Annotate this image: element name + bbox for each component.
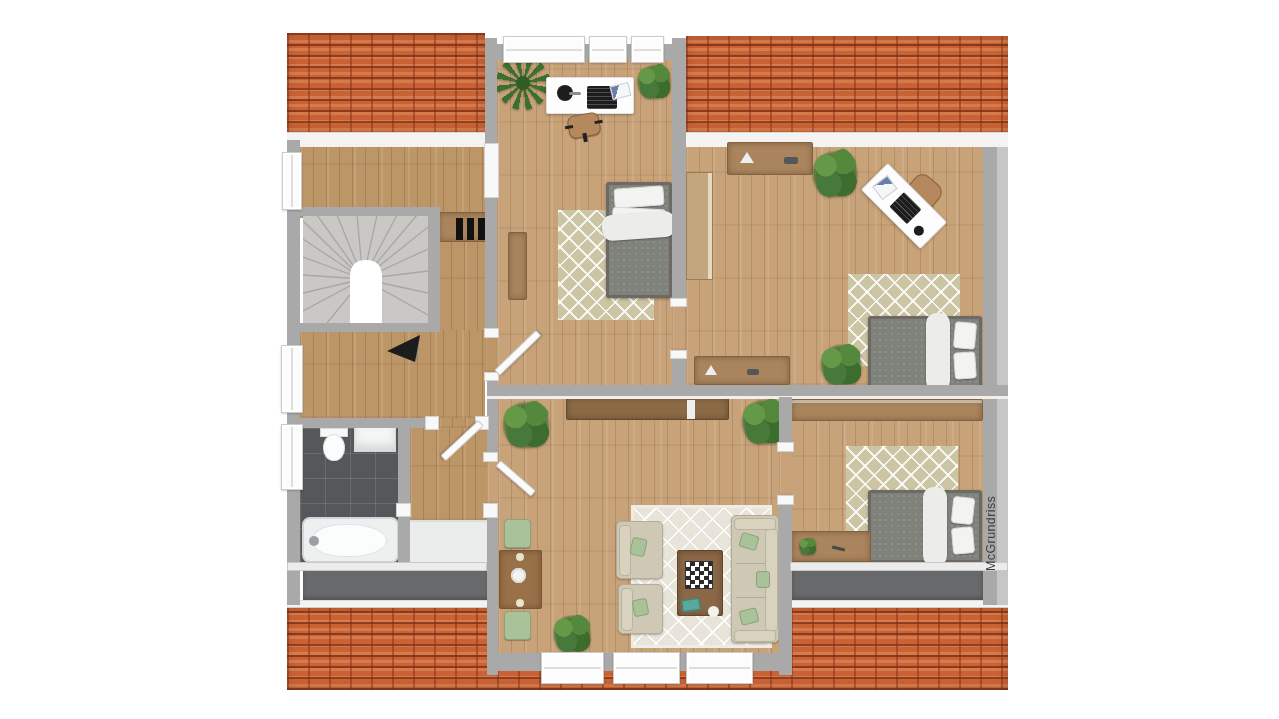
window (281, 424, 303, 490)
table-deco-icon (516, 599, 524, 607)
armchair-back (621, 588, 633, 631)
radiator-shelf (438, 212, 487, 242)
sideboard-north (727, 142, 813, 175)
floor-plan-canvas: McGrundriss (0, 0, 1279, 719)
staircase (303, 215, 428, 323)
wall-living-west (487, 518, 498, 675)
pillow (953, 351, 977, 379)
green-cushion (756, 571, 770, 588)
jamb (396, 503, 411, 517)
office-magazine-icon (610, 82, 632, 100)
wall-bath-top (287, 418, 427, 428)
office-plant (636, 62, 672, 102)
door-landing-office (484, 143, 499, 198)
dining-table (499, 550, 542, 609)
window (686, 652, 753, 684)
jamb (483, 452, 498, 462)
living-plant-nw (500, 399, 552, 451)
jamb (425, 416, 439, 430)
east-door-threshold (672, 307, 686, 350)
sideboard-south (694, 356, 790, 385)
wall-southeast-bottom (790, 562, 1008, 571)
jamb (484, 328, 499, 338)
wall-stair-east (428, 215, 440, 332)
potted-plant-icon (798, 537, 817, 556)
chessboard-icon (685, 561, 713, 589)
wall-living-east-b (779, 505, 792, 675)
wall-stair-north (300, 207, 440, 216)
coffee-table (677, 550, 723, 616)
window-sash (506, 49, 582, 51)
deco-triangle-icon (705, 365, 717, 375)
hall-nook-floor (410, 428, 487, 520)
dining-chair-north (504, 519, 531, 548)
desk-lamp-arm (569, 92, 581, 95)
office-wall-board (508, 232, 527, 300)
window (631, 36, 664, 63)
pillow (951, 526, 975, 555)
sofa-seat-divider (736, 563, 766, 564)
teal-book-icon (681, 598, 700, 612)
living-sideboard (566, 397, 729, 420)
wall-office-west-b (485, 198, 497, 328)
roof-top-right (686, 36, 1008, 134)
wall-bath-east-a (398, 428, 410, 503)
jamb (670, 350, 687, 359)
wall-living-east-a (779, 397, 792, 442)
southeast-door-threshold (779, 452, 792, 495)
stair-void-arch (350, 260, 382, 323)
window (503, 36, 585, 63)
green-cushion (632, 598, 650, 617)
duvet-fold (923, 487, 947, 566)
window-sash (634, 49, 661, 51)
deco-item (784, 157, 798, 164)
sofa-seat-divider (736, 597, 766, 598)
balcony-east (792, 568, 983, 600)
wall-bath-bottom (287, 562, 487, 571)
east-floor-plant (818, 342, 864, 388)
stair-direction-arrow (386, 334, 422, 364)
sofa (731, 515, 779, 643)
east-magazine-icon (872, 175, 897, 200)
watermark: McGrundriss (984, 486, 1002, 580)
pen-icon (832, 545, 845, 551)
green-cushion (738, 607, 759, 626)
armchair-south (618, 584, 663, 634)
living-plant-sw (551, 613, 593, 655)
window-sash (592, 49, 624, 51)
sideboard-gap (687, 400, 695, 419)
toilet-bowl (323, 434, 345, 461)
bath-shelf (354, 427, 396, 452)
southeast-bed (868, 490, 982, 563)
deco-triangle-icon (740, 152, 754, 163)
radiator-icon (467, 218, 474, 240)
east-bed (868, 316, 982, 388)
green-cushion (738, 532, 759, 551)
balcony-west (303, 568, 488, 600)
window-sash (291, 155, 293, 207)
chair-leg (582, 133, 588, 143)
green-cushion (629, 537, 647, 558)
window-sash (291, 348, 293, 410)
radiator-icon (478, 218, 485, 240)
faucet-icon (309, 536, 319, 546)
office-desk (546, 77, 634, 114)
palm-plant (496, 56, 550, 110)
plate-icon (511, 568, 526, 583)
window-sash (616, 667, 677, 669)
living-door-threshold (487, 462, 498, 503)
roof-top-left (287, 33, 485, 134)
wall-bath-east-b (398, 517, 410, 563)
wall-office-east-a (672, 38, 686, 298)
toilet (320, 428, 350, 462)
office-single-bed (606, 182, 672, 298)
jamb (483, 503, 498, 518)
dining-chair-south (504, 611, 531, 640)
jamb (670, 298, 687, 307)
pillow (953, 321, 977, 350)
desk-cup-icon (912, 224, 926, 238)
window (282, 152, 302, 210)
window-sash (689, 667, 750, 669)
bowl-icon (708, 606, 719, 617)
table-deco-icon (516, 553, 524, 561)
bathtub-basin (313, 524, 387, 557)
window (541, 652, 604, 684)
staircase-steps (303, 215, 428, 323)
southeast-desk (791, 531, 871, 562)
window (589, 36, 627, 63)
wall-stair-south (287, 323, 440, 332)
fern-plant (812, 146, 858, 202)
sofa-armrest (734, 630, 776, 642)
long-sideboard (791, 399, 983, 421)
pillow (951, 496, 976, 525)
chair-leg (565, 125, 573, 129)
wall-office-west-a (485, 38, 497, 143)
duvet-fold (926, 313, 950, 391)
wardrobe (686, 172, 713, 280)
window (281, 345, 303, 413)
deco-item (747, 369, 759, 375)
wall-living-top-line (487, 396, 1008, 399)
jamb (777, 442, 794, 452)
window-sash (291, 427, 293, 487)
window-sash (544, 667, 601, 669)
radiator-icon (456, 218, 463, 240)
bathtub (302, 517, 399, 563)
duvet-fold (601, 210, 676, 241)
armchair-north (616, 521, 663, 579)
window (613, 652, 680, 684)
office-door-threshold (485, 338, 497, 372)
jamb (777, 495, 794, 505)
east-laptop-icon (889, 192, 922, 225)
pillow (613, 185, 664, 208)
